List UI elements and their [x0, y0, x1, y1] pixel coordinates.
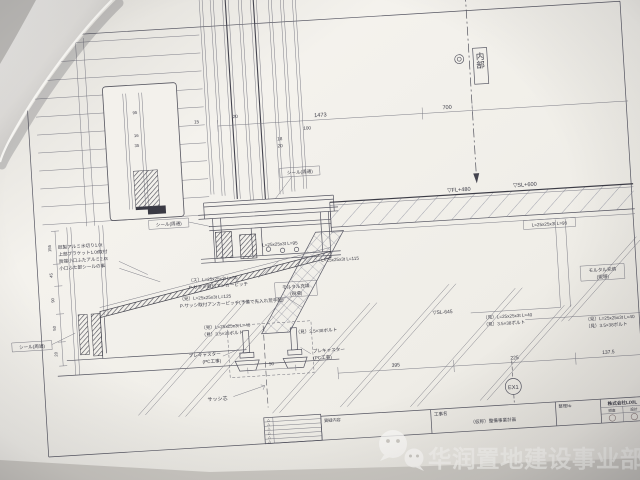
photo-of-construction-drawing: 95 16 35 ▽FL+480 ▽SL+600 内部 1473 70: [0, 0, 640, 480]
scene: 95 16 35 ▽FL+480 ▽SL+600 内部 1473 70: [0, 0, 640, 480]
photo-vignette: [0, 0, 640, 480]
